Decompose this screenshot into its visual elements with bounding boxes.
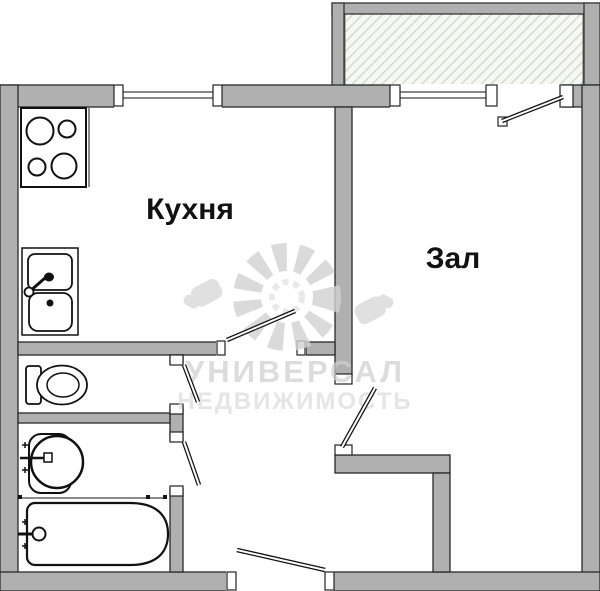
living-room-label: Зал: [426, 242, 481, 275]
washbasin-icon: [20, 434, 83, 493]
floor-plan-canvas: УНИВЕРСАЛ НЕДВИЖИМОСТЬ Кухня За: [0, 0, 600, 591]
bath-divider-line: [18, 495, 167, 499]
fixtures: [18, 108, 168, 565]
doors: [184, 97, 563, 570]
wall-hall-vertical: [433, 473, 450, 572]
bathroom-door-leaf: [184, 442, 199, 485]
watermark-hand-left-icon: [178, 276, 225, 314]
wall-right: [582, 85, 600, 591]
wall-hall-horizontal: [335, 455, 450, 473]
kitchen-window: [123, 92, 213, 98]
kitchen-sink-icon: [22, 248, 78, 335]
wall-wc-bath-divider: [18, 413, 170, 423]
toilet-icon: [26, 366, 87, 405]
watermark-text-line2: НЕДВИЖИМОСТЬ: [177, 388, 412, 415]
living-window: [400, 92, 487, 98]
watermark: УНИВЕРСАЛ НЕДВИЖИМОСТЬ: [177, 257, 412, 415]
watermark-hand-right-icon: [352, 288, 399, 326]
wall-kitchen-living: [335, 107, 352, 375]
kitchen-label: Кухня: [146, 193, 234, 226]
entrance-door-leaf: [237, 550, 325, 570]
floor-plan: УНИВЕРСАЛ НЕДВИЖИМОСТЬ Кухня За: [0, 0, 600, 591]
wall-left: [0, 85, 18, 591]
bathtub-icon: [18, 503, 168, 565]
balcony-hatch-area: [345, 13, 583, 87]
stove-icon: [21, 108, 89, 187]
balcony: [332, 3, 600, 87]
watermark-text-line1: УНИВЕРСАЛ: [185, 354, 405, 389]
